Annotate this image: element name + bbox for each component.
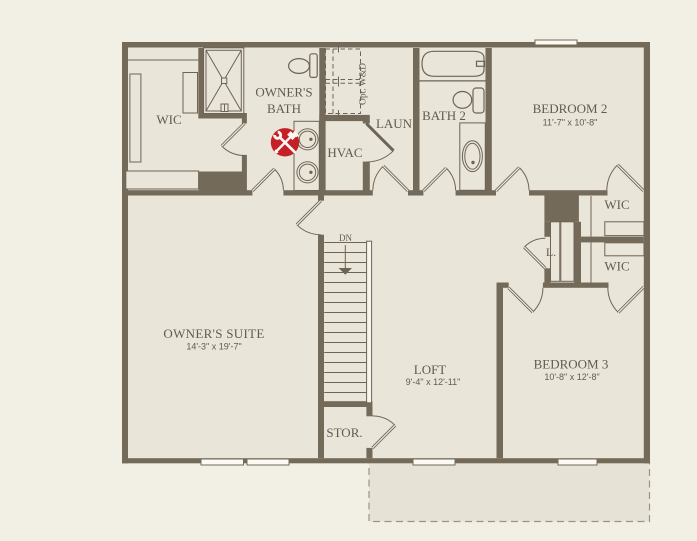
- svg-text:OWNER'S SUITE: OWNER'S SUITE: [163, 326, 264, 341]
- svg-text:WIC: WIC: [156, 112, 181, 127]
- svg-text:9'-4" x 12'-11": 9'-4" x 12'-11": [406, 377, 461, 387]
- svg-text:BATH 2: BATH 2: [422, 108, 466, 123]
- svg-text:14'-3" x 19'-7": 14'-3" x 19'-7": [186, 342, 241, 352]
- svg-text:STOR.: STOR.: [326, 425, 362, 440]
- svg-text:BEDROOM 3: BEDROOM 3: [534, 357, 609, 372]
- svg-text:LAUN: LAUN: [376, 116, 413, 131]
- svg-text:10'-8" x 12'-8": 10'-8" x 12'-8": [544, 372, 599, 382]
- svg-text:LOFT: LOFT: [414, 362, 447, 377]
- svg-text:BEDROOM 2: BEDROOM 2: [533, 101, 608, 116]
- svg-text:L.: L.: [546, 245, 556, 259]
- svg-text:WIC: WIC: [604, 197, 629, 212]
- svg-text:11'-7" x 10'-8": 11'-7" x 10'-8": [543, 118, 598, 128]
- svg-text:HVAC: HVAC: [327, 145, 362, 160]
- svg-text:DN: DN: [339, 233, 352, 243]
- svg-text:BATH: BATH: [267, 101, 301, 116]
- svg-text:Opt. W&D: Opt. W&D: [359, 63, 369, 105]
- svg-text:OWNER'S: OWNER'S: [255, 85, 312, 100]
- svg-text:WIC: WIC: [604, 259, 629, 274]
